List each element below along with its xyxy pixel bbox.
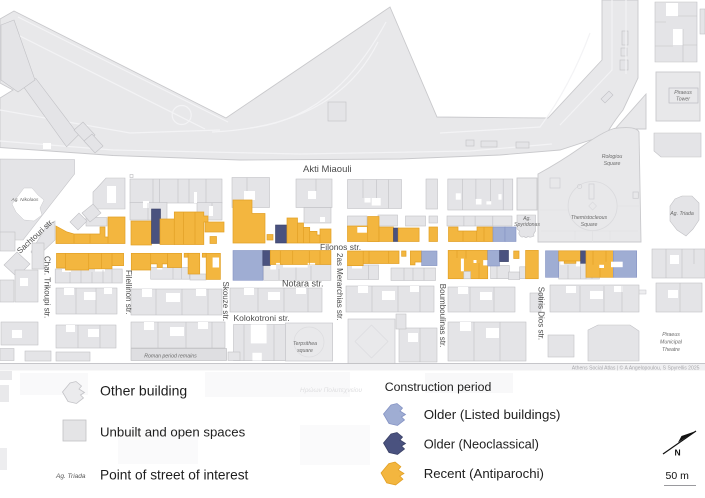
- svg-text:Construction period: Construction period: [385, 380, 492, 394]
- svg-text:square: square: [297, 348, 313, 354]
- svg-text:Skouze str.: Skouze str.: [221, 282, 230, 322]
- svg-text:Point of street of interest: Point of street of interest: [100, 467, 249, 482]
- svg-text:Notara str.: Notara str.: [282, 279, 324, 289]
- svg-text:50 m: 50 m: [666, 470, 690, 482]
- svg-text:Unbuilt and open spaces: Unbuilt and open spaces: [100, 425, 246, 440]
- svg-text:N: N: [675, 448, 681, 458]
- svg-text:Athens Social Atlas | © A Ange: Athens Social Atlas | © A Angelopoulou, …: [572, 365, 700, 372]
- svg-text:Sotiris Dios str.: Sotiris Dios str.: [536, 287, 545, 340]
- svg-text:Roman period remains: Roman period remains: [144, 354, 197, 360]
- svg-text:Terpsithea: Terpsithea: [293, 341, 317, 347]
- svg-text:Square: Square: [581, 222, 598, 228]
- svg-text:Spyridonas: Spyridonas: [514, 222, 540, 228]
- svg-text:Filellinon str.: Filellinon str.: [124, 270, 133, 314]
- svg-text:Ag. Nikolaos: Ag. Nikolaos: [11, 197, 40, 203]
- svg-text:Recent (Antiparochi): Recent (Antiparochi): [424, 466, 544, 481]
- svg-text:Filonos str.: Filonos str.: [320, 242, 361, 252]
- svg-text:Kolokotroni str.: Kolokotroni str.: [234, 313, 290, 323]
- svg-text:Ag. Triada: Ag. Triada: [55, 473, 86, 480]
- svg-text:Rologiou: Rologiou: [602, 154, 623, 160]
- svg-text:Ag. Triada: Ag. Triada: [669, 211, 694, 217]
- svg-text:Akti Miaouli: Akti Miaouli: [303, 164, 352, 175]
- svg-text:Tower: Tower: [676, 97, 690, 103]
- svg-text:Municipal: Municipal: [660, 340, 683, 346]
- svg-text:Older (Listed buildings): Older (Listed buildings): [424, 407, 561, 422]
- svg-text:2as Merarchias str.: 2as Merarchias str.: [335, 253, 344, 321]
- svg-text:Themistocleous: Themistocleous: [571, 215, 608, 221]
- svg-text:Square: Square: [604, 161, 621, 167]
- svg-text:Piraeus: Piraeus: [662, 332, 680, 338]
- svg-text:Other building: Other building: [100, 383, 187, 399]
- svg-text:Boumboulinas str.: Boumboulinas str.: [438, 284, 447, 348]
- svg-text:Theatre: Theatre: [662, 347, 680, 353]
- svg-text:Char. Trikoupi str.: Char. Trikoupi str.: [43, 256, 52, 318]
- svg-text:Older (Neoclassical): Older (Neoclassical): [424, 437, 539, 452]
- svg-text:Piraeus: Piraeus: [674, 90, 692, 96]
- svg-text:Ηρώων Πολυτεχνείου: Ηρώων Πολυτεχνείου: [300, 386, 362, 394]
